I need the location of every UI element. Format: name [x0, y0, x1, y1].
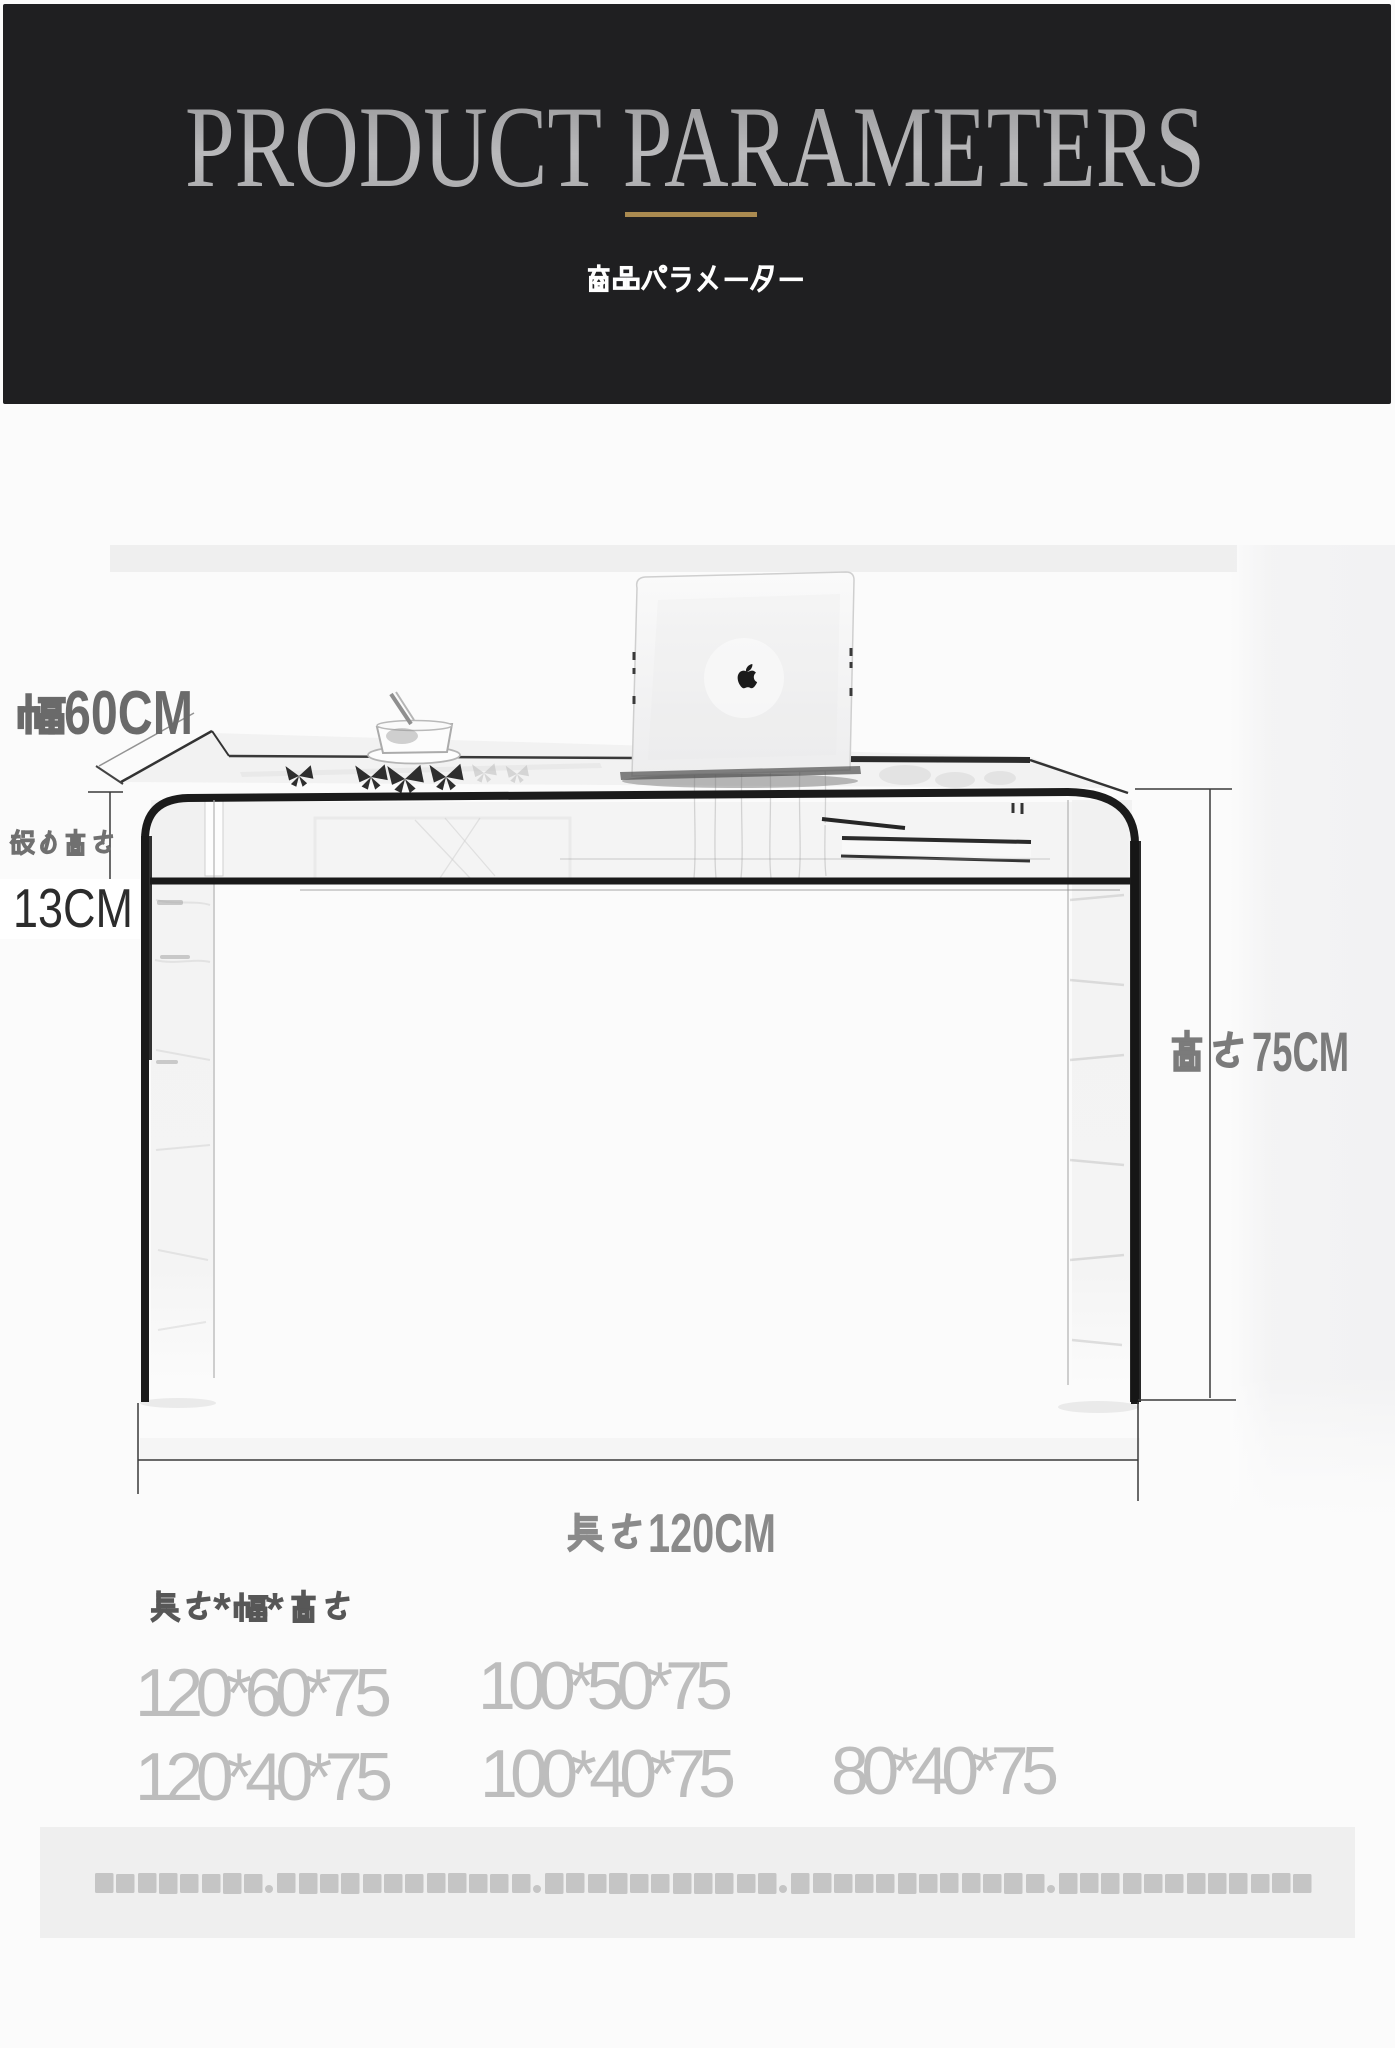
svg-text:*: * — [266, 1583, 284, 1635]
svg-text:80*40*75: 80*40*75 — [831, 1733, 1059, 1809]
svg-text:120*60*75: 120*60*75 — [135, 1655, 392, 1731]
svg-text:75CM: 75CM — [1252, 1020, 1349, 1083]
svg-text:13CM: 13CM — [13, 877, 133, 939]
svg-text:100*40*75: 100*40*75 — [480, 1736, 736, 1812]
svg-text:*: * — [213, 1583, 231, 1635]
svg-text:100*50*75: 100*50*75 — [478, 1648, 733, 1724]
svg-text:120*40*75: 120*40*75 — [135, 1739, 393, 1815]
svg-text:120CM: 120CM — [648, 1502, 776, 1564]
svg-text:60CM: 60CM — [64, 679, 193, 748]
svg-text:PRODUCT PARAMETERS: PRODUCT PARAMETERS — [185, 83, 1205, 212]
